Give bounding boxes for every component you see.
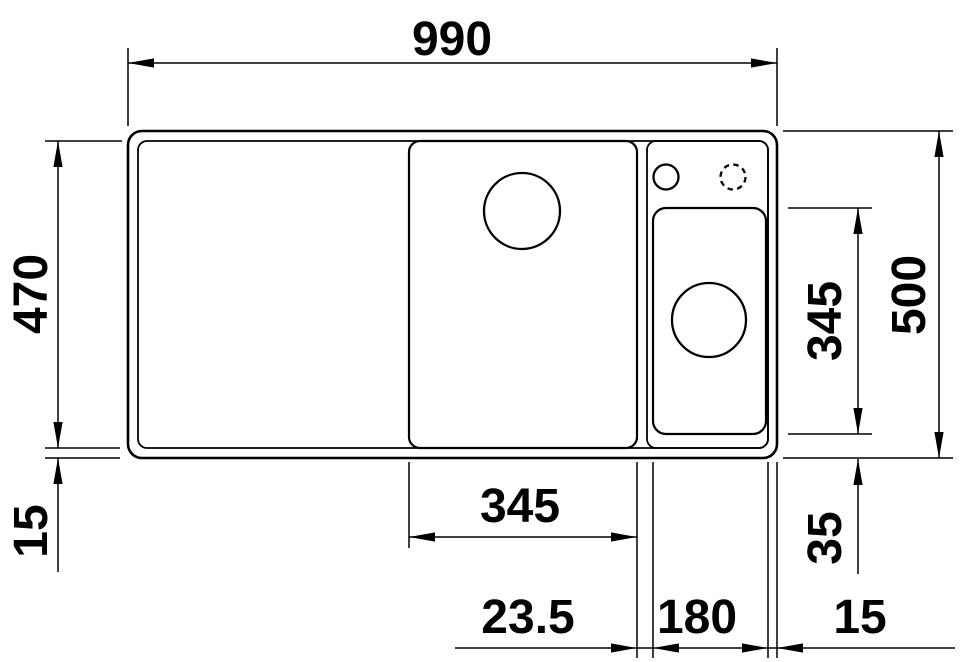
main-bowl xyxy=(409,141,637,448)
dimension-main-bowl-width: 345 xyxy=(409,462,637,548)
dimension-arrow-left xyxy=(128,58,154,67)
dimension-inner-depth: 470 xyxy=(5,141,122,448)
right-compartment xyxy=(647,141,768,448)
dimension-label-inner-depth: 470 xyxy=(5,254,58,334)
dimension-label-accessory-bowl-width: 180 xyxy=(657,591,737,644)
main-bowl-drain-hole xyxy=(484,173,560,249)
dimension-arrow-left xyxy=(777,643,803,652)
dimension-arrow-up xyxy=(934,131,943,157)
dimension-label-main-bowl-width: 345 xyxy=(480,480,560,533)
dimension-label-bowl-divider-width: 23.5 xyxy=(481,591,574,644)
sink-dimension-drawing: 990470155003453534523.518015 xyxy=(0,0,960,662)
dimension-accessory-bowl-width: 180 xyxy=(657,462,768,658)
dimension-arrow-up xyxy=(853,459,862,485)
dimension-label-right-rim-width: 15 xyxy=(833,591,886,644)
accessory-bowl xyxy=(653,208,766,434)
dimension-arrow-down xyxy=(934,432,943,458)
accessory-bowl-drain-hole xyxy=(672,283,746,357)
dimension-label-overall-depth: 500 xyxy=(883,255,936,335)
dimension-front-rim-width: 15 xyxy=(5,458,120,572)
dimension-arrow-down xyxy=(53,422,62,448)
sink-outer-edge xyxy=(128,131,777,458)
dimension-arrow-right xyxy=(742,643,768,652)
dimension-arrow-left xyxy=(409,532,435,541)
dimension-label-accessory-bowl-front-offset: 35 xyxy=(799,511,852,564)
dimension-label-accessory-bowl-depth: 345 xyxy=(799,281,852,361)
sink-technical-drawing-page: 990470155003453534523.518015 xyxy=(0,0,960,662)
dimension-accessory-bowl-depth: 345 xyxy=(788,208,872,434)
dimension-arrow-right xyxy=(611,532,637,541)
dimension-arrow-right xyxy=(751,58,777,67)
dimension-arrow-left xyxy=(653,643,679,652)
dimension-arrow-right xyxy=(611,643,637,652)
dimension-accessory-bowl-front-offset: 35 xyxy=(799,459,863,574)
dimension-label-overall-width: 990 xyxy=(412,13,492,66)
dimension-arrow-up xyxy=(53,141,62,167)
tap-hole xyxy=(654,165,679,190)
dimension-arrow-up xyxy=(853,208,862,234)
dimension-label-front-rim-width: 15 xyxy=(5,504,58,557)
dimension-arrow-down xyxy=(853,408,862,434)
tap-hole-optional xyxy=(721,165,746,190)
dimension-arrow-up xyxy=(53,458,62,484)
dimension-overall-width: 990 xyxy=(128,13,777,126)
